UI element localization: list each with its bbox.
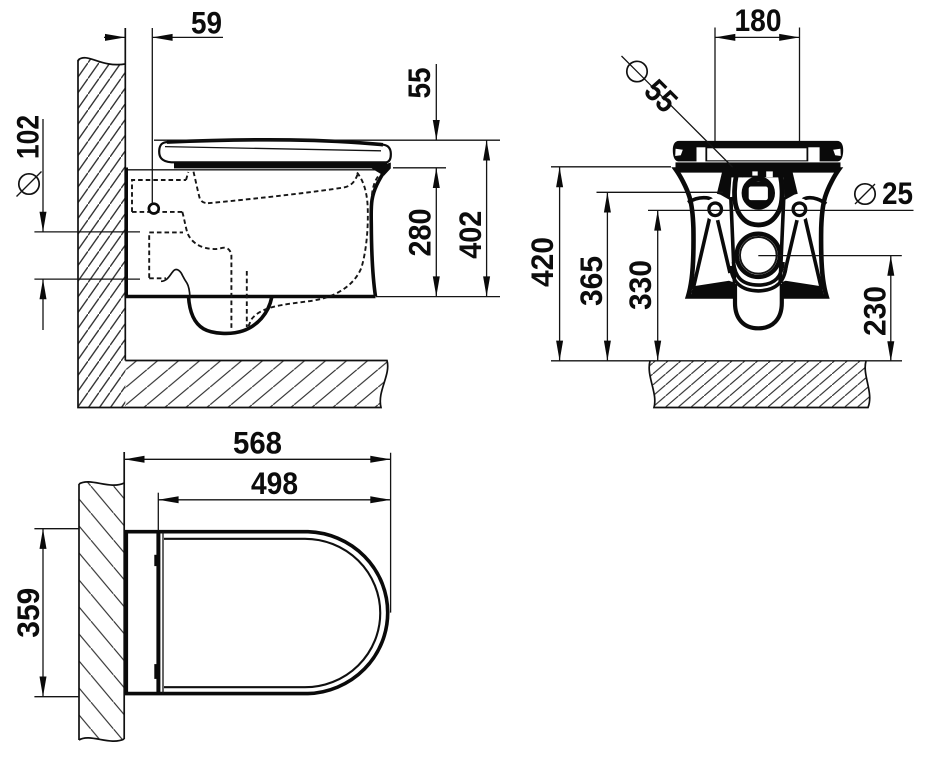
svg-text:420: 420	[524, 237, 560, 287]
svg-text:359: 359	[10, 588, 46, 638]
svg-text:59: 59	[191, 5, 222, 41]
svg-text:180: 180	[735, 2, 782, 38]
svg-text:230: 230	[857, 286, 893, 336]
svg-text:365: 365	[573, 256, 609, 306]
svg-text:330: 330	[622, 260, 658, 310]
svg-text:25: 25	[882, 175, 913, 211]
svg-text:102: 102	[10, 115, 46, 159]
svg-text:402: 402	[452, 211, 488, 259]
svg-text:280: 280	[402, 209, 438, 257]
svg-text:568: 568	[233, 425, 282, 461]
svg-text:498: 498	[251, 465, 298, 501]
svg-text:55: 55	[401, 68, 437, 99]
